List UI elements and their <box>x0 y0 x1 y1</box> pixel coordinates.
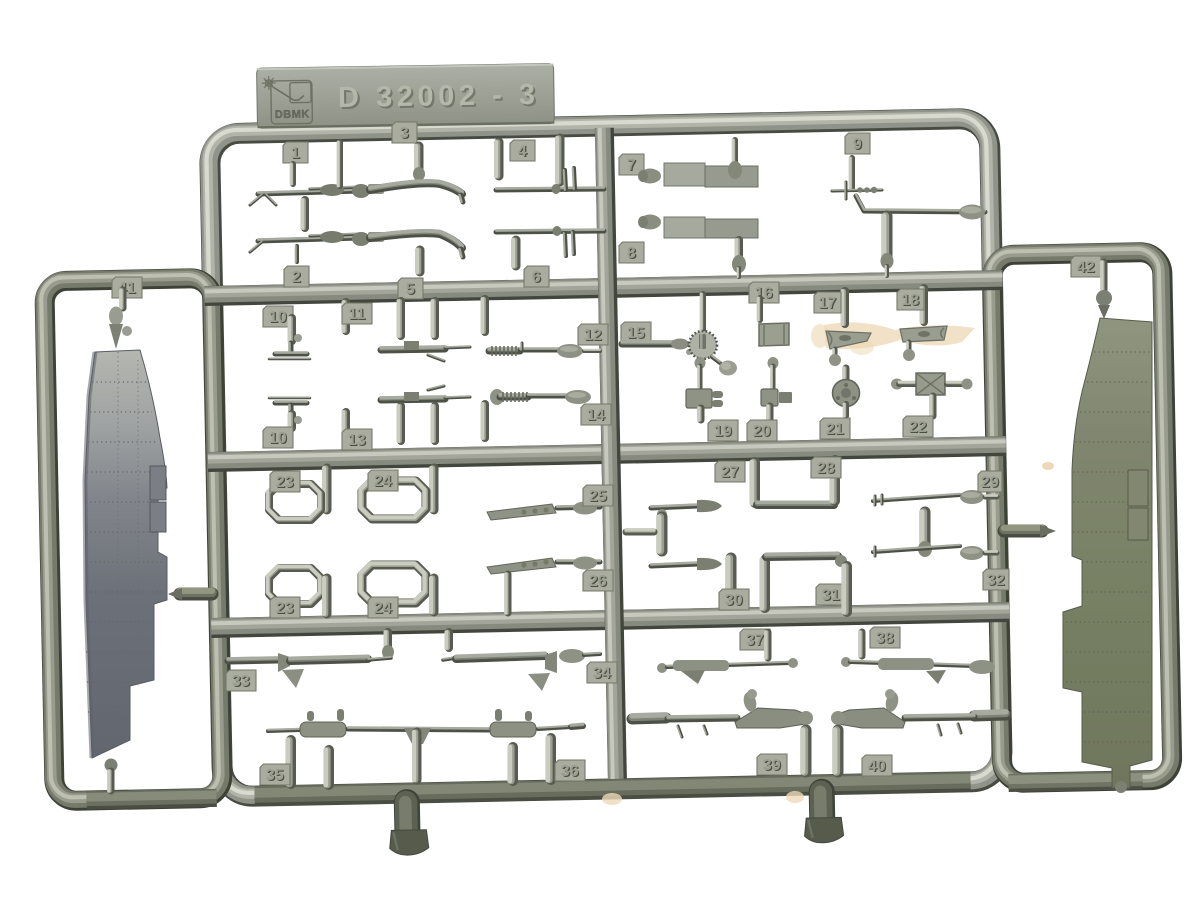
svg-text:36: 36 <box>561 763 579 780</box>
svg-text:21: 21 <box>826 421 844 438</box>
svg-text:33: 33 <box>232 673 250 690</box>
svg-text:34: 34 <box>593 665 611 682</box>
svg-text:30: 30 <box>725 592 743 609</box>
svg-text:24: 24 <box>374 473 392 490</box>
svg-text:12: 12 <box>584 327 602 344</box>
svg-text:18: 18 <box>901 292 919 309</box>
svg-text:40: 40 <box>868 758 886 775</box>
svg-text:10: 10 <box>269 309 287 326</box>
svg-text:14: 14 <box>587 407 605 424</box>
svg-text:DBMK: DBMK <box>275 108 310 121</box>
svg-text:10: 10 <box>269 430 287 447</box>
svg-text:13: 13 <box>348 432 366 449</box>
svg-text:8: 8 <box>627 245 636 262</box>
svg-text:17: 17 <box>818 295 836 312</box>
svg-text:35: 35 <box>266 767 284 784</box>
svg-text:2: 2 <box>292 269 301 286</box>
svg-text:39: 39 <box>763 757 781 774</box>
svg-text:22: 22 <box>909 419 927 436</box>
svg-text:1: 1 <box>291 145 300 162</box>
svg-text:3: 3 <box>400 125 409 142</box>
svg-text:32: 32 <box>987 572 1005 589</box>
svg-text:26: 26 <box>589 573 607 590</box>
svg-text:D 32002 - 3: D 32002 - 3 <box>338 79 538 114</box>
svg-text:9: 9 <box>853 136 862 153</box>
svg-text:20: 20 <box>753 423 771 440</box>
svg-text:11: 11 <box>348 306 365 323</box>
svg-text:28: 28 <box>817 460 835 477</box>
svg-text:4: 4 <box>518 143 527 160</box>
svg-text:15: 15 <box>627 325 645 342</box>
svg-text:42: 42 <box>1077 259 1095 276</box>
svg-text:37: 37 <box>746 632 764 649</box>
svg-text:19: 19 <box>714 423 732 440</box>
svg-text:38: 38 <box>876 630 894 647</box>
svg-text:27: 27 <box>721 464 739 481</box>
svg-text:24: 24 <box>374 600 392 617</box>
svg-text:6: 6 <box>532 269 541 286</box>
svg-text:23: 23 <box>276 600 294 617</box>
svg-text:31: 31 <box>822 587 840 604</box>
svg-text:5: 5 <box>406 281 415 298</box>
svg-text:7: 7 <box>627 157 636 174</box>
svg-text:23: 23 <box>276 474 294 491</box>
svg-text:25: 25 <box>589 488 607 505</box>
svg-text:29: 29 <box>981 474 999 491</box>
